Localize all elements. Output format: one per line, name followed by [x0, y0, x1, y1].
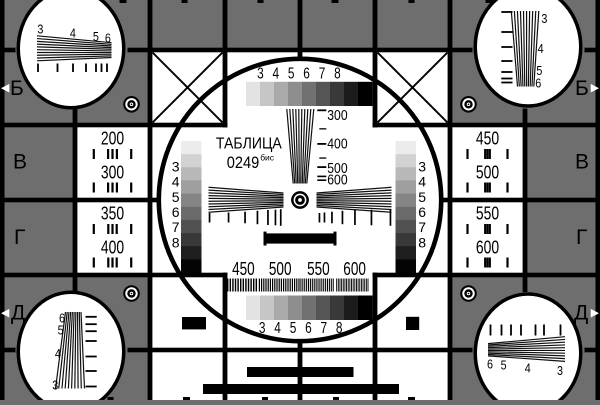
svg-text:6: 6 — [305, 320, 312, 337]
svg-text:6: 6 — [535, 75, 541, 90]
svg-text:4: 4 — [70, 26, 76, 41]
svg-text:Д: Д — [574, 302, 588, 325]
svg-text:7: 7 — [321, 320, 328, 337]
svg-text:Г: Г — [576, 226, 587, 249]
svg-text:4: 4 — [274, 320, 281, 337]
svg-text:Б: Б — [575, 77, 589, 100]
svg-text:5: 5 — [288, 65, 295, 82]
svg-text:3: 3 — [418, 158, 426, 174]
svg-text:300: 300 — [327, 108, 347, 124]
svg-text:7: 7 — [172, 219, 180, 235]
svg-text:6: 6 — [418, 204, 426, 220]
svg-text:6: 6 — [303, 65, 310, 82]
svg-text:7: 7 — [418, 219, 426, 235]
svg-text:5: 5 — [58, 323, 64, 338]
svg-text:4: 4 — [273, 65, 280, 82]
svg-text:бис: бис — [260, 153, 275, 163]
svg-text:600: 600 — [327, 173, 347, 189]
svg-text:8: 8 — [418, 234, 426, 250]
svg-text:3: 3 — [172, 158, 180, 174]
svg-text:4: 4 — [418, 174, 426, 190]
svg-text:7: 7 — [319, 65, 326, 82]
svg-text:200: 200 — [101, 129, 124, 149]
svg-text:4: 4 — [525, 360, 531, 375]
svg-text:500: 500 — [476, 163, 499, 183]
svg-text:3: 3 — [541, 11, 547, 26]
svg-text:8: 8 — [336, 320, 343, 337]
svg-text:400: 400 — [327, 137, 347, 153]
svg-text:5: 5 — [172, 189, 180, 205]
svg-text:350: 350 — [101, 204, 124, 224]
svg-text:В: В — [13, 151, 27, 174]
svg-text:4: 4 — [55, 346, 61, 361]
svg-text:6: 6 — [487, 356, 493, 371]
svg-text:3: 3 — [52, 378, 58, 393]
svg-text:5: 5 — [418, 189, 426, 205]
svg-text:600: 600 — [343, 259, 366, 279]
svg-text:8: 8 — [172, 234, 180, 250]
svg-text:450: 450 — [476, 129, 499, 149]
svg-text:4: 4 — [172, 174, 180, 190]
svg-text:3: 3 — [259, 320, 266, 337]
svg-text:550: 550 — [476, 204, 499, 224]
svg-text:5: 5 — [501, 358, 507, 373]
svg-text:ТАБЛИЦА: ТАБЛИЦА — [216, 135, 282, 152]
svg-text:Б: Б — [10, 77, 24, 100]
svg-text:Г: Г — [14, 226, 25, 249]
svg-text:6: 6 — [172, 204, 180, 220]
svg-text:450: 450 — [232, 259, 255, 279]
svg-text:500: 500 — [269, 259, 292, 279]
svg-text:400: 400 — [101, 238, 124, 258]
svg-text:0249: 0249 — [227, 154, 260, 172]
svg-text:5: 5 — [290, 320, 297, 337]
svg-text:3: 3 — [557, 363, 563, 378]
svg-text:300: 300 — [101, 163, 124, 183]
svg-text:5: 5 — [93, 29, 99, 44]
svg-text:3: 3 — [257, 65, 264, 82]
svg-text:Д: Д — [11, 302, 25, 325]
svg-text:В: В — [575, 151, 589, 174]
svg-text:4: 4 — [538, 41, 544, 56]
svg-text:8: 8 — [334, 65, 341, 82]
svg-text:550: 550 — [307, 259, 330, 279]
svg-text:3: 3 — [37, 21, 43, 36]
svg-text:6: 6 — [105, 31, 111, 46]
svg-text:600: 600 — [476, 238, 499, 258]
